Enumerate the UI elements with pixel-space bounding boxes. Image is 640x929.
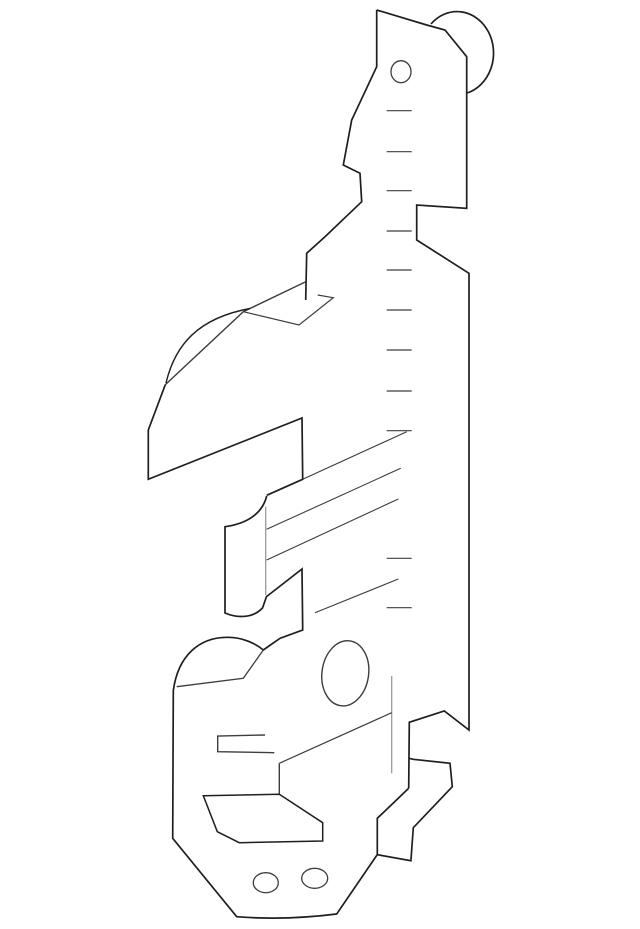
lower-body-chord [177, 650, 264, 687]
c-clip-profile [225, 496, 267, 616]
bent-tab-flap [243, 295, 333, 325]
rivet-hole-right [302, 868, 328, 888]
upper-left-outline [306, 10, 377, 300]
oval-hole [322, 641, 369, 706]
main-plate-right-edge [377, 10, 469, 788]
slot-parallelogram [203, 794, 322, 842]
body-diagonal [279, 713, 391, 764]
rib-line-3 [267, 499, 399, 560]
j-hook [377, 758, 452, 860]
open-slot [218, 735, 275, 753]
rib-line-4 [315, 579, 398, 613]
part-line-drawing [0, 0, 640, 929]
notch-plate [267, 569, 303, 638]
rib-line-2 [267, 468, 401, 529]
bent-tab-diagonal [165, 282, 305, 385]
mid-plate-panel [148, 385, 302, 496]
top-bolt-hole [391, 61, 411, 83]
rivet-hole-left [253, 873, 278, 893]
diagram-canvas [0, 0, 640, 929]
